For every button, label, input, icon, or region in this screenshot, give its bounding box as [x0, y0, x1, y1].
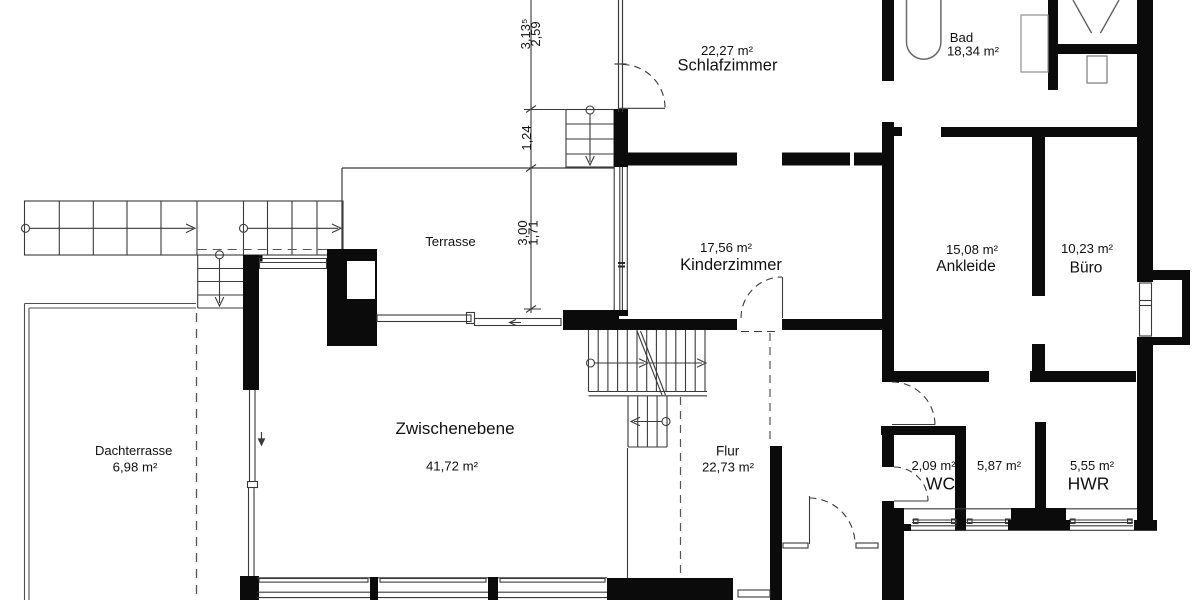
- svg-text:Kinderzimmer: Kinderzimmer: [680, 256, 782, 274]
- svg-text:HWR: HWR: [1068, 474, 1110, 494]
- svg-text:10,23 m²: 10,23 m²: [1061, 241, 1114, 256]
- svg-text:2,09 m²: 2,09 m²: [911, 458, 956, 473]
- svg-text:18,34 m²: 18,34 m²: [947, 44, 1000, 59]
- svg-text:Zwischenebene: Zwischenebene: [395, 419, 514, 438]
- svg-text:22,73 m²: 22,73 m²: [702, 460, 755, 475]
- svg-text:1,71: 1,71: [526, 220, 541, 245]
- svg-text:Flur: Flur: [716, 444, 740, 459]
- svg-text:Ankleide: Ankleide: [936, 258, 995, 275]
- svg-text:2,59: 2,59: [528, 21, 543, 46]
- svg-text:5,87 m²: 5,87 m²: [977, 458, 1022, 473]
- svg-text:Dachterrasse: Dachterrasse: [95, 443, 172, 458]
- svg-text:41,72 m²: 41,72 m²: [426, 459, 479, 474]
- svg-text:1,24: 1,24: [519, 125, 534, 150]
- svg-text:5,55 m²: 5,55 m²: [1070, 458, 1115, 473]
- svg-text:WC: WC: [926, 474, 955, 494]
- svg-text:Büro: Büro: [1070, 260, 1103, 277]
- svg-text:6,98 m²: 6,98 m²: [113, 460, 158, 475]
- svg-text:Schlafzimmer: Schlafzimmer: [678, 57, 778, 75]
- svg-text:17,56 m²: 17,56 m²: [700, 240, 753, 255]
- svg-text:15,08 m²: 15,08 m²: [946, 242, 999, 257]
- svg-text:Terrasse: Terrasse: [425, 234, 476, 249]
